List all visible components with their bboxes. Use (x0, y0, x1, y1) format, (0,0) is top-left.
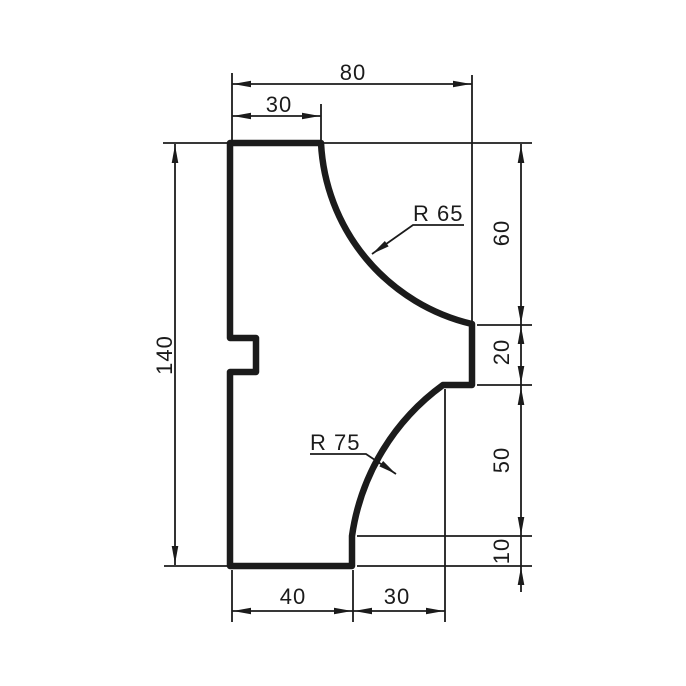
dim-label-base-height: 10 (489, 538, 514, 564)
arrow-20-top (518, 326, 525, 344)
arrow-30b-left (354, 608, 372, 615)
drawing-canvas: 80 30 140 60 20 50 10 40 30 R 65 R 75 (0, 0, 686, 686)
extension-lines (163, 73, 532, 622)
radius-upper-label: R 65 (413, 201, 463, 226)
arrow-30t-left (233, 113, 251, 120)
radius-lower-label: R 75 (310, 430, 360, 455)
arrow-140-top (172, 145, 179, 163)
arrow-10-bottom (518, 567, 525, 585)
arrow-40-right (334, 608, 352, 615)
dim-label-bottom-right-width: 30 (384, 584, 410, 609)
arrow-40-left (233, 608, 251, 615)
dim-label-step-height: 20 (489, 339, 514, 365)
dim-label-top-setback: 30 (266, 92, 292, 117)
arrow-50-bottom (518, 517, 525, 535)
arrow-140-bottom (172, 546, 179, 564)
arrow-50-top (518, 387, 525, 405)
arrow-30t-right (302, 113, 320, 120)
dim-label-top-width: 80 (340, 60, 366, 85)
dim-label-upper-right-height: 60 (489, 220, 514, 246)
arrow-60-bottom (518, 306, 525, 324)
leader-r65 (372, 225, 464, 254)
arrow-80-left (233, 81, 251, 88)
arrow-20-bottom (518, 366, 525, 384)
arrow-80-right (453, 81, 471, 88)
arrow-30b-right (426, 608, 444, 615)
profile-drawing-svg: 80 30 140 60 20 50 10 40 30 R 65 R 75 (0, 0, 686, 686)
arrow-60-top (518, 145, 525, 163)
dim-label-bottom-left-width: 40 (280, 584, 306, 609)
dim-label-lower-right-height: 50 (489, 447, 514, 473)
dim-label-overall-height: 140 (152, 335, 177, 375)
